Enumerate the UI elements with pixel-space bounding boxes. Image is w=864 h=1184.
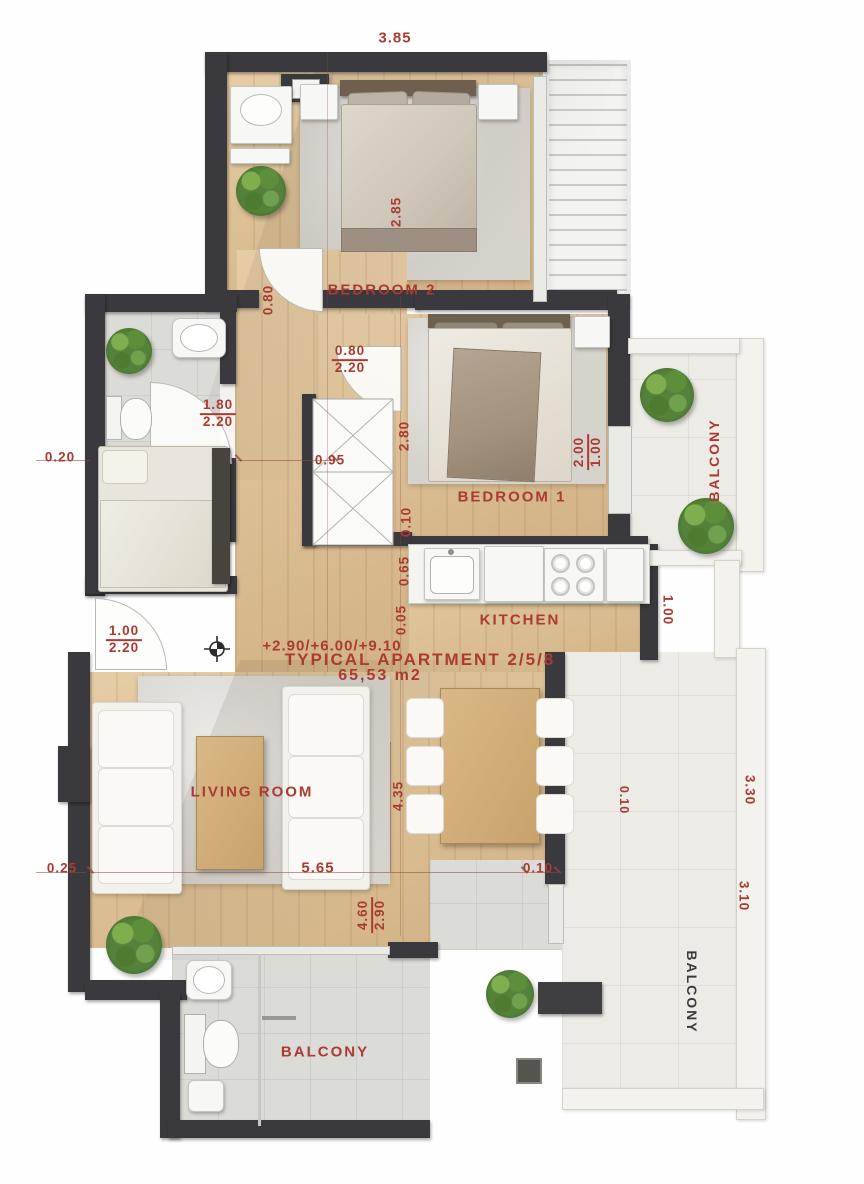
dim-value: 2.00 — [572, 434, 589, 470]
glass-partition — [258, 954, 261, 1126]
plant — [486, 970, 534, 1018]
kitchen-cabinet — [484, 546, 544, 602]
bed2-nightstand — [478, 84, 518, 120]
plant — [106, 328, 152, 374]
dining-chair — [536, 746, 574, 786]
floor-balcony-lower-right — [562, 652, 740, 1102]
dim-living-width: 5.65 — [301, 860, 334, 877]
dim-bathroom-door: 1.80 2.20 — [200, 398, 236, 430]
dim-left-offset-b: 0.25 — [47, 861, 77, 876]
burner — [551, 577, 570, 596]
console — [538, 982, 602, 1014]
room-label-kitchen: KITCHEN — [480, 612, 561, 629]
dim-top-width: 3.85 — [378, 30, 411, 47]
room-label-bedroom2: BEDROOM 2 — [328, 282, 437, 299]
sofa-cushion — [98, 710, 174, 768]
burner — [576, 577, 595, 596]
dim-value: 2.90 — [373, 897, 388, 933]
bidet — [188, 1080, 224, 1112]
dim-living-offset: 0.10 — [523, 861, 553, 876]
fridge — [606, 548, 644, 602]
dim-balcony-edge: 1.00 — [661, 595, 676, 625]
dim-value: 2.20 — [200, 415, 236, 430]
dim-right-offset: 0.10 — [617, 786, 631, 814]
room-label-living: LIVING ROOM — [191, 784, 314, 801]
window-bedroom1 — [608, 426, 632, 514]
coffee-table — [196, 736, 264, 870]
toilet-bowl — [120, 398, 152, 440]
dim-value: 4.60 — [356, 897, 373, 933]
dim-balcony-depth: 4.60 2.90 — [356, 897, 388, 933]
parapet — [714, 560, 740, 658]
shelf — [230, 148, 290, 164]
bed2-foot-blanket — [341, 228, 477, 252]
faucet — [448, 549, 454, 555]
room-label-balcony-lower-right: BALCONY — [684, 950, 700, 1033]
dining-table — [440, 688, 540, 844]
towel-bar — [262, 1016, 296, 1020]
daybed-pillow — [102, 450, 148, 484]
bed1-nightstand — [574, 316, 610, 348]
floor-drain — [516, 1058, 542, 1084]
vanity-basin — [240, 94, 282, 126]
dim-value: 2.20 — [106, 641, 142, 656]
dim-left-offset-a: 0.20 — [45, 450, 75, 465]
wall — [160, 992, 180, 1138]
room-label-balcony-upper-right: BALCONY — [706, 418, 722, 501]
room-label-bedroom1: BEDROOM 1 — [458, 489, 567, 506]
wall — [85, 294, 237, 312]
washbasin-bowl — [180, 324, 218, 352]
toilet-bowl — [203, 1020, 239, 1068]
dim-value: 1.80 — [200, 398, 236, 415]
dim-value: 0.80 — [332, 344, 368, 361]
floor-plan: BEDROOM 2 BEDROOM 1 KITCHEN LIVING ROOM … — [0, 0, 864, 1184]
dim-right-width-b: 3.10 — [737, 881, 752, 911]
dim-value: 1.00 — [106, 624, 142, 641]
balcony-glazing-top-right — [545, 60, 631, 310]
parapet — [562, 1088, 764, 1110]
burner — [551, 554, 570, 573]
dim-kitchen-offset-a: 0.65 — [397, 556, 412, 586]
closet — [312, 398, 394, 546]
dim-bed1-offset: 0.10 — [399, 507, 414, 537]
bed2-nightstand — [300, 84, 338, 120]
dining-chair — [406, 746, 444, 786]
window-bedroom2 — [533, 76, 547, 302]
wall — [68, 652, 90, 992]
parapet — [628, 338, 740, 354]
wall — [388, 942, 438, 958]
daybed-blanket — [100, 500, 226, 588]
dim-bed1-depth: 2.80 — [397, 421, 412, 451]
dim-right-width-a: 3.30 — [743, 775, 758, 805]
parapet — [736, 338, 764, 572]
plant — [640, 368, 694, 422]
plant — [106, 916, 162, 974]
kitchen-sink — [430, 556, 474, 594]
dim-bedroom1-door: 0.80 2.20 — [332, 344, 368, 376]
burner — [576, 554, 595, 573]
dim-living-depth: 4.35 — [391, 781, 406, 811]
sofa-cushion — [288, 694, 364, 756]
wall — [205, 52, 227, 310]
dim-value: 2.20 — [332, 361, 368, 376]
dining-chair — [536, 794, 574, 834]
level-marker-icon — [204, 636, 230, 662]
wall — [205, 52, 547, 72]
dim-bedroom1-window: 2.00 1.00 — [572, 434, 604, 470]
plant — [678, 498, 734, 554]
wall — [608, 294, 630, 426]
apartment-area: 65,53 m2 — [338, 667, 422, 685]
dim-corridor: 0.95 — [315, 453, 345, 468]
dining-chair — [406, 794, 444, 834]
section-line — [327, 52, 328, 672]
sliding-door-living — [172, 946, 390, 955]
dim-bed2-depth: 2.85 — [389, 197, 404, 227]
dining-chair — [406, 698, 444, 738]
wall — [168, 1120, 430, 1138]
wall — [415, 290, 617, 310]
dim-value: 1.00 — [589, 434, 604, 470]
dim-entrance-door: 1.00 2.20 — [106, 624, 142, 656]
dresser — [212, 448, 230, 584]
dining-chair — [536, 698, 574, 738]
washbasin-bowl — [193, 966, 225, 994]
sofa-cushion — [98, 768, 174, 826]
wall-niche — [58, 746, 90, 802]
room-label-balcony-bottom: BALCONY — [281, 1044, 369, 1061]
plant — [236, 166, 286, 216]
bed1-blanket — [447, 348, 542, 482]
dim-hall-door: 0.80 — [261, 285, 276, 315]
dim-kitchen-offset-b: 0.05 — [394, 605, 409, 635]
balcony-door-right — [548, 884, 564, 944]
sofa-cushion — [98, 826, 174, 884]
